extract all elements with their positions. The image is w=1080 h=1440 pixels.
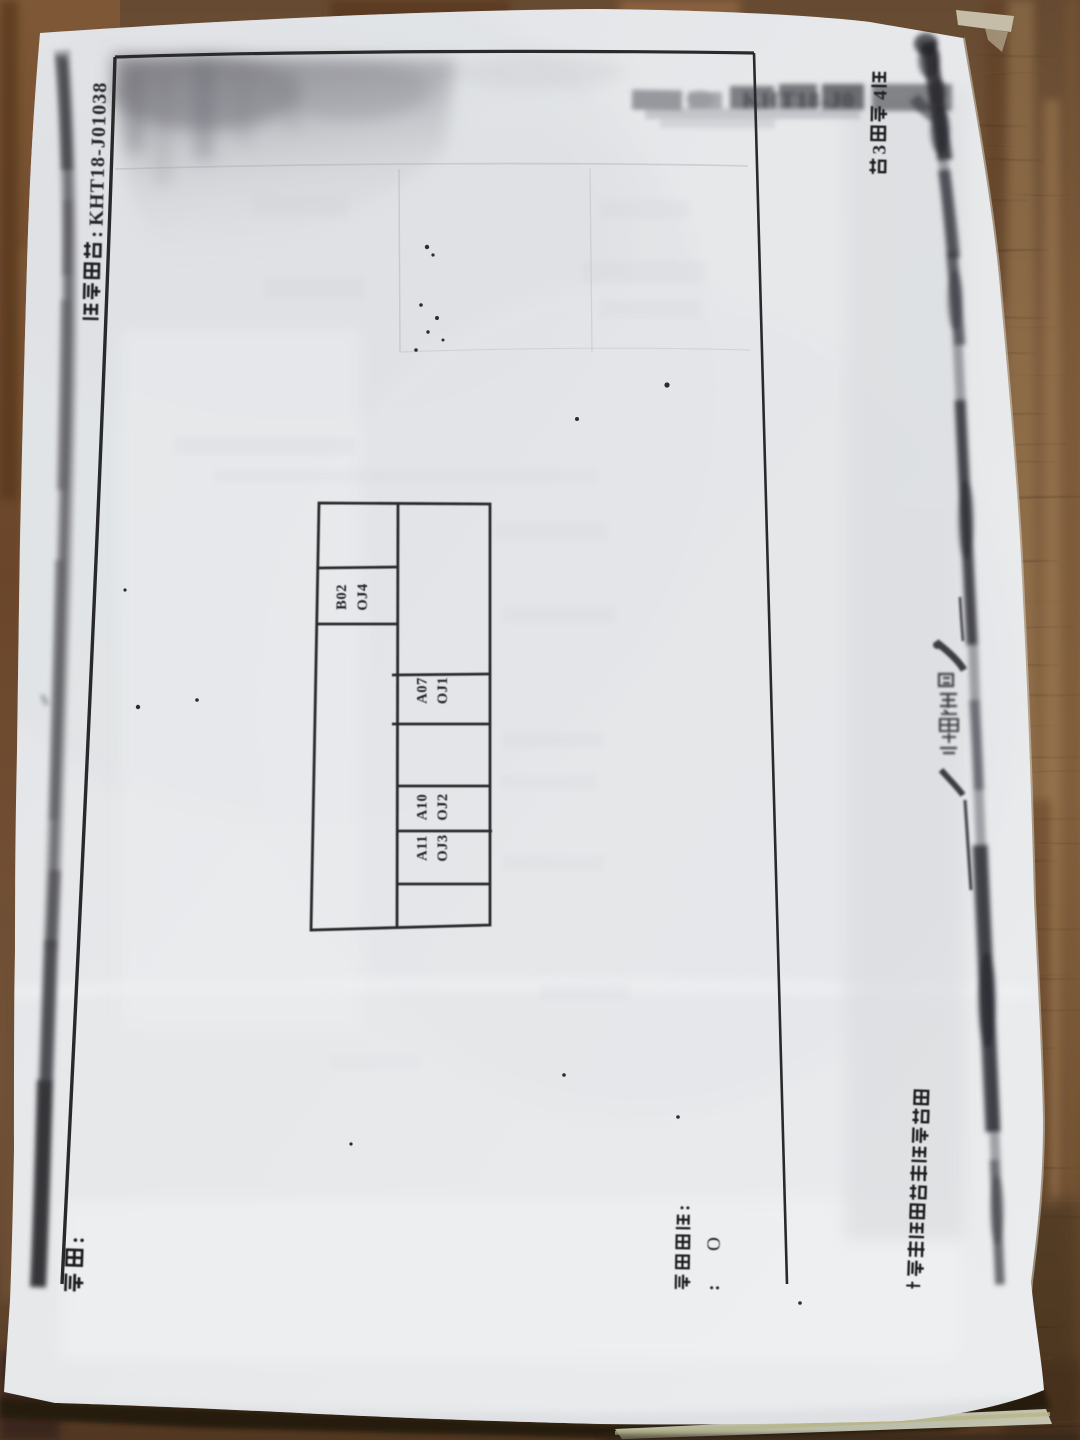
svg-text:A11: A11 (415, 835, 431, 861)
svg-text:A10: A10 (415, 794, 431, 820)
svg-text::: : (83, 231, 107, 239)
svg-text:OJ3: OJ3 (435, 834, 451, 861)
svg-text:OJ2: OJ2 (435, 793, 451, 820)
svg-text:3: 3 (869, 145, 890, 155)
svg-text:OJ1: OJ1 (435, 677, 451, 704)
svg-text::: : (673, 1204, 694, 1211)
svg-text:A07: A07 (415, 677, 431, 703)
svg-text::: : (64, 1236, 89, 1244)
svg-text:OJ4: OJ4 (355, 583, 371, 610)
svg-text:B02: B02 (334, 584, 350, 610)
svg-text:KHT18-J01038: KHT18-J01038 (86, 81, 112, 226)
svg-text:4: 4 (870, 90, 891, 100)
svg-text:O: O (704, 1237, 725, 1251)
svg-text::: : (703, 1284, 724, 1291)
svg-text:KHT18-J0: KHT18-J0 (742, 88, 855, 113)
